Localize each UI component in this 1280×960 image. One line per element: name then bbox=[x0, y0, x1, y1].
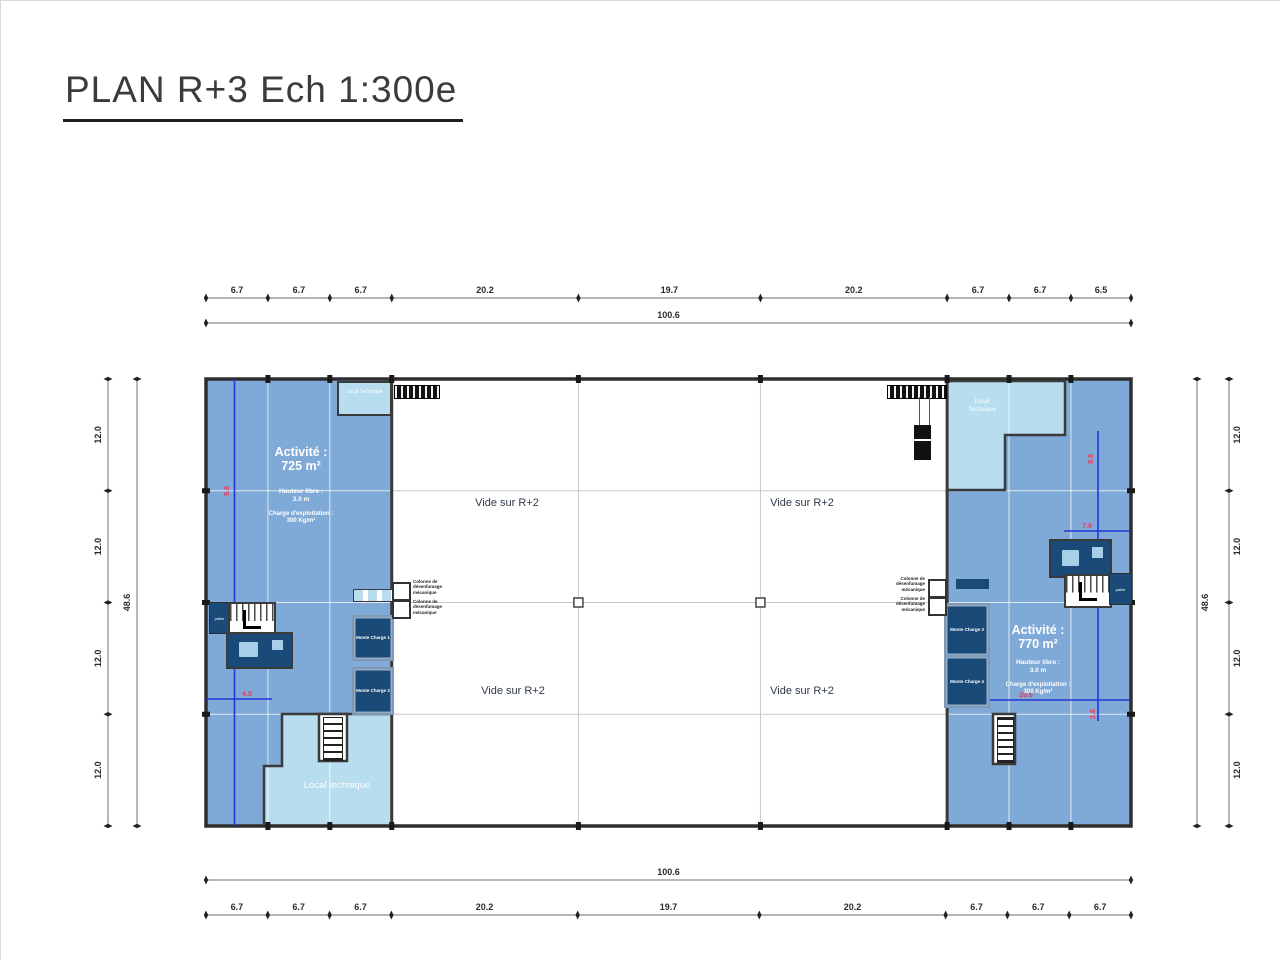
local-technique-top-left-room bbox=[338, 382, 391, 415]
dim-tick bbox=[1005, 911, 1009, 920]
floor-plan-page: PLAN R+3 Ech 1:300e 6.76.76.720.219.720.… bbox=[0, 0, 1280, 960]
dim-label: 48.6 bbox=[1200, 594, 1210, 612]
dim-label: 20.2 bbox=[844, 902, 862, 912]
ladder-rails-right bbox=[919, 397, 930, 425]
dim-tick bbox=[1067, 911, 1071, 920]
clear-height-value: 3.0 m bbox=[293, 496, 310, 503]
local-technique-bottom-left-label: Local technique bbox=[289, 780, 385, 792]
smoke-column-right-1 bbox=[928, 579, 947, 598]
ladder-bottom-left bbox=[323, 717, 343, 761]
dim-tick bbox=[104, 489, 113, 493]
dim-label: 6.7 bbox=[1094, 902, 1107, 912]
clear-height-value: 3.0 m bbox=[1030, 667, 1047, 674]
dim-tick bbox=[945, 294, 949, 303]
ladder-bottom-right bbox=[997, 717, 1014, 763]
dim-tick bbox=[104, 377, 113, 381]
dim-tick bbox=[204, 876, 208, 885]
dim-tick bbox=[266, 294, 270, 303]
dim-label: 6.7 bbox=[231, 285, 244, 295]
dim-tick bbox=[1225, 824, 1234, 828]
dim-tick bbox=[104, 712, 113, 716]
dim-tick bbox=[266, 911, 270, 920]
right-activity-label: Activité : 770 m² Hauteur libre : 3.0 m … bbox=[978, 623, 1098, 697]
dim-label: 12.0 bbox=[93, 650, 103, 668]
clear-height-label: Hauteur libre : bbox=[279, 488, 323, 495]
dim-tick bbox=[943, 911, 947, 920]
dim-label: 6.7 bbox=[293, 285, 306, 295]
dim-tick bbox=[1193, 377, 1202, 381]
dim-label: 6.7 bbox=[972, 285, 985, 295]
dim-tick bbox=[1129, 876, 1133, 885]
smoke-column-label: Colonne de désenfumage mécanique bbox=[873, 576, 925, 592]
dim-label: 20.2 bbox=[476, 902, 494, 912]
roof-hatch-right bbox=[887, 385, 947, 399]
clear-height-label: Hauteur libre : bbox=[1016, 659, 1060, 666]
load-label: Charge d'exploitation : bbox=[1006, 682, 1071, 688]
monte-charge-4: Monte Charge 4 bbox=[944, 655, 990, 708]
load-value: 300 Kg/m² bbox=[287, 518, 316, 524]
dim-tick bbox=[1225, 712, 1234, 716]
dim-tick bbox=[133, 377, 142, 381]
dim-tick bbox=[389, 911, 393, 920]
dim-tick bbox=[1069, 294, 1073, 303]
ladder-block-right-2 bbox=[914, 441, 931, 460]
dim-tick bbox=[1225, 489, 1234, 493]
activity-area: 725 m² bbox=[236, 459, 366, 473]
activity-name: Activité : bbox=[236, 445, 366, 459]
column-mark bbox=[576, 822, 581, 830]
local-technique-top-left-label: Local Technique bbox=[341, 389, 388, 395]
dim-label: 12.0 bbox=[1232, 538, 1242, 556]
dim-label: 12.0 bbox=[93, 761, 103, 779]
dim-label: 6.7 bbox=[231, 902, 244, 912]
monte-charge-1: Monte Charge 1 bbox=[352, 615, 394, 661]
dim-label: 20.2 bbox=[845, 285, 863, 295]
dim-tick bbox=[104, 824, 113, 828]
stair-right bbox=[1064, 574, 1112, 608]
dim-tick bbox=[104, 600, 113, 604]
palier-right-room: palier bbox=[1109, 573, 1132, 605]
dim-label: 12.0 bbox=[1232, 650, 1242, 668]
dim-tick bbox=[758, 294, 762, 303]
dim-tick bbox=[576, 294, 580, 303]
dim-tick bbox=[133, 824, 142, 828]
dim-label: 100.6 bbox=[657, 867, 680, 877]
dim-label: 6.7 bbox=[1032, 902, 1045, 912]
local-technique-bottom-left-step bbox=[264, 766, 284, 825]
smoke-column-left-1 bbox=[392, 582, 411, 601]
smoke-column-label: Colonne de désenfumage mécanique bbox=[413, 599, 465, 615]
column-mark bbox=[758, 822, 763, 830]
dim-label: 19.7 bbox=[660, 902, 678, 912]
dim-tick bbox=[390, 294, 394, 303]
dim-label: 12.0 bbox=[93, 426, 103, 444]
dim-tick bbox=[757, 911, 761, 920]
dim-label: 12.0 bbox=[1232, 426, 1242, 444]
column-mark bbox=[576, 375, 581, 383]
dim-tick bbox=[204, 911, 208, 920]
void-label-bottom-left: Vide sur R+2 bbox=[465, 685, 561, 697]
void-label-top-left: Vide sur R+2 bbox=[459, 497, 555, 509]
dim-tick bbox=[328, 294, 332, 303]
dim-label: 6.7 bbox=[292, 902, 305, 912]
activity-area: 770 m² bbox=[978, 637, 1098, 651]
hatch-door-right bbox=[956, 579, 989, 589]
left-activity-label: Activité : 725 m² Hauteur libre : 3.0 m … bbox=[236, 445, 366, 526]
dim-tick bbox=[1193, 824, 1202, 828]
dim-tick bbox=[204, 294, 208, 303]
dim-tick bbox=[1225, 377, 1234, 381]
wc-block-right bbox=[1049, 539, 1112, 578]
centre-column bbox=[574, 598, 583, 607]
load-value: 300 Kg/m² bbox=[1024, 689, 1053, 695]
void-label-bottom-right: Vide sur R+2 bbox=[754, 685, 850, 697]
hatch-door-left bbox=[353, 589, 393, 602]
dim-label: 12.0 bbox=[93, 538, 103, 556]
dim-label: 6.7 bbox=[354, 902, 367, 912]
dim-label: 19.7 bbox=[661, 285, 679, 295]
roof-hatch-left bbox=[394, 385, 440, 399]
dim-tick bbox=[1129, 319, 1133, 328]
dim-label: 100.6 bbox=[657, 310, 680, 320]
monte-charge-2: Monte Charge 2 bbox=[352, 667, 394, 715]
smoke-column-label: Colonne de désenfumage mécanique bbox=[413, 579, 465, 595]
monte-charge-3: Monte Charge 3 bbox=[944, 603, 990, 657]
dim-label: 12.0 bbox=[1232, 761, 1242, 779]
dim-label: 48.6 bbox=[122, 594, 132, 612]
palier-left-room: palier bbox=[209, 602, 230, 634]
dim-tick bbox=[1129, 911, 1133, 920]
dim-label: 20.2 bbox=[476, 285, 494, 295]
dim-tick bbox=[1225, 600, 1234, 604]
ladder-block-right-1 bbox=[914, 425, 931, 439]
dim-tick bbox=[204, 319, 208, 328]
dim-tick bbox=[1129, 294, 1133, 303]
dim-tick bbox=[575, 911, 579, 920]
dim-label: 6.7 bbox=[1034, 285, 1047, 295]
centre-column bbox=[756, 598, 765, 607]
column-mark bbox=[758, 375, 763, 383]
void-label-top-right: Vide sur R+2 bbox=[754, 497, 850, 509]
smoke-column-right-2 bbox=[928, 597, 947, 616]
activity-name: Activité : bbox=[978, 623, 1098, 637]
dim-label: 6.7 bbox=[355, 285, 368, 295]
dim-tick bbox=[327, 911, 331, 920]
dim-tick bbox=[1007, 294, 1011, 303]
dim-label: 6.7 bbox=[970, 902, 983, 912]
wc-block-left bbox=[226, 632, 293, 669]
smoke-column-label: Colonne de désenfumage mécanique bbox=[873, 596, 925, 612]
local-technique-top-right-label: Local Technique bbox=[961, 399, 1003, 414]
smoke-column-left-2 bbox=[392, 600, 411, 619]
page-title: PLAN R+3 Ech 1:300e bbox=[63, 69, 463, 122]
dim-label: 6.5 bbox=[1095, 285, 1108, 295]
local-technique-top-right-step bbox=[947, 435, 1005, 490]
load-label: Charge d'exploitation : bbox=[269, 511, 334, 517]
